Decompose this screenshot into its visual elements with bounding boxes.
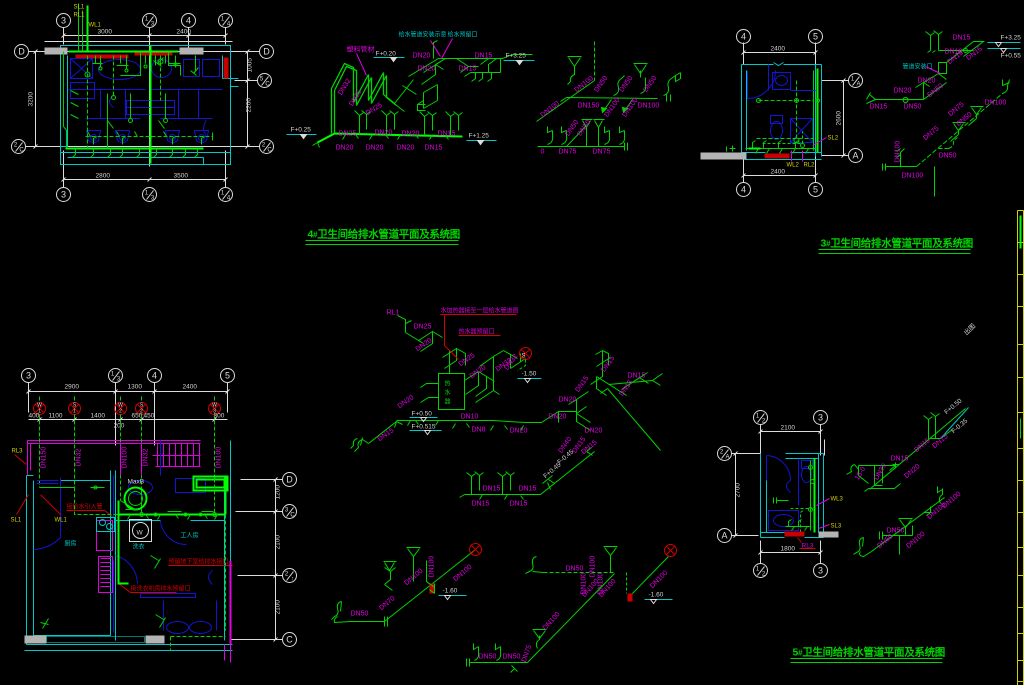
svg-text:DN150: DN150 <box>578 103 600 110</box>
svg-text:DN20: DN20 <box>559 397 577 404</box>
svg-text:F+0.20: F+0.20 <box>376 51 397 58</box>
svg-text:DN25: DN25 <box>339 131 357 138</box>
svg-text:WL3: WL3 <box>831 497 844 503</box>
svg-text:SL1: SL1 <box>11 518 22 524</box>
svg-text:3000: 3000 <box>98 29 113 36</box>
svg-text:4: 4 <box>741 32 746 42</box>
svg-text:F+0.515: F+0.515 <box>412 424 436 431</box>
svg-text:A: A <box>852 151 858 161</box>
svg-text:接洗衣机房排水预留口: 接洗衣机房排水预留口 <box>131 585 191 593</box>
svg-text:4: 4 <box>152 371 157 381</box>
svg-text:DN15: DN15 <box>519 486 537 493</box>
svg-text:F+1.25: F+1.25 <box>469 133 490 140</box>
svg-text:给水管道安装示意: 给水管道安装示意 <box>399 31 447 39</box>
svg-text:管道安装口: 管道安装口 <box>903 63 933 71</box>
svg-text:5#卫生间给排水管道平面及系统图: 5#卫生间给排水管道平面及系统图 <box>793 646 946 659</box>
svg-text:DN20: DN20 <box>366 145 384 152</box>
svg-text:DN20: DN20 <box>894 88 912 95</box>
svg-text:DN50: DN50 <box>566 566 584 573</box>
svg-text:3#卫生间给排水管道平面及系统图: 3#卫生间给排水管道平面及系统图 <box>821 237 974 250</box>
svg-text:RL3: RL3 <box>12 449 24 455</box>
svg-text:1200: 1200 <box>275 485 282 500</box>
svg-text:3: 3 <box>818 566 823 576</box>
svg-text:1800: 1800 <box>781 546 796 553</box>
svg-text:RL1: RL1 <box>74 13 86 19</box>
svg-text:↑: ↑ <box>291 577 294 583</box>
svg-text:3500: 3500 <box>174 173 189 180</box>
svg-text:DN15: DN15 <box>628 373 646 380</box>
svg-text:-1.50: -1.50 <box>522 371 537 378</box>
svg-text:F+3.25: F+3.25 <box>1001 35 1022 42</box>
svg-text:DN15: DN15 <box>953 35 971 42</box>
svg-text:DN15: DN15 <box>870 104 888 111</box>
svg-text:DN15: DN15 <box>459 66 477 73</box>
svg-text:给水预留口: 给水预留口 <box>448 31 478 39</box>
svg-text:W: W <box>137 530 144 537</box>
svg-text:厨房: 厨房 <box>65 540 77 548</box>
svg-text:DN150: DN150 <box>41 447 48 469</box>
svg-text:WL1: WL1 <box>89 23 102 29</box>
svg-text:2100: 2100 <box>781 425 796 432</box>
svg-text:D: D <box>263 47 270 57</box>
svg-text:2600: 2600 <box>836 111 843 126</box>
svg-text:A: A <box>856 82 860 88</box>
svg-text:DN32: DN32 <box>143 448 150 466</box>
svg-text:DN20: DN20 <box>397 145 415 152</box>
svg-text:DN20: DN20 <box>418 66 436 73</box>
svg-text:2400: 2400 <box>771 169 786 176</box>
svg-text:DN15: DN15 <box>475 53 493 60</box>
svg-text:1: 1 <box>73 409 76 415</box>
svg-text:C: C <box>286 635 293 645</box>
svg-text:DN25: DN25 <box>414 324 432 331</box>
svg-text:D: D <box>18 47 25 57</box>
svg-text:3: 3 <box>26 371 31 381</box>
svg-text:DN15: DN15 <box>510 501 528 508</box>
svg-text:C: C <box>290 513 295 519</box>
svg-text:DN10: DN10 <box>461 414 479 421</box>
svg-text:-1.60: -1.60 <box>443 588 458 595</box>
svg-text:DN32: DN32 <box>76 448 83 466</box>
svg-text:DN100: DN100 <box>985 100 1007 107</box>
svg-text:450: 450 <box>144 413 155 420</box>
svg-text:5: 5 <box>225 371 230 381</box>
svg-text:DN20: DN20 <box>402 131 420 138</box>
svg-text:C: C <box>267 148 272 154</box>
svg-text:F+0.50: F+0.50 <box>412 411 433 418</box>
svg-text:DN100: DN100 <box>122 447 129 469</box>
svg-text:DN15: DN15 <box>425 145 443 152</box>
svg-text:F+0.25: F+0.25 <box>291 127 312 134</box>
svg-text:DN100: DN100 <box>638 103 660 110</box>
svg-text:C: C <box>19 148 24 154</box>
svg-text:1005: 1005 <box>247 58 254 73</box>
svg-text:3: 3 <box>61 190 66 200</box>
svg-text:DN15: DN15 <box>438 131 456 138</box>
svg-text:SL3: SL3 <box>831 524 842 530</box>
svg-text:DN20: DN20 <box>510 428 528 435</box>
svg-text:DN100: DN100 <box>429 556 436 578</box>
svg-text:1400: 1400 <box>91 413 106 420</box>
svg-text:SL1: SL1 <box>74 5 85 11</box>
svg-text:DN50: DN50 <box>351 611 369 618</box>
svg-text:DN20: DN20 <box>336 145 354 152</box>
svg-text:F+3.25: F+3.25 <box>506 53 527 60</box>
svg-text:C: C <box>265 82 270 88</box>
svg-text:DN20: DN20 <box>585 428 603 435</box>
svg-text:2400: 2400 <box>177 29 192 36</box>
svg-text:DN100: DN100 <box>902 173 924 180</box>
svg-text:1300: 1300 <box>128 384 143 391</box>
svg-text:200: 200 <box>114 423 125 430</box>
svg-text:3: 3 <box>61 16 66 26</box>
svg-text:接给水引入管: 接给水引入管 <box>67 503 103 511</box>
svg-text:5: 5 <box>813 32 818 42</box>
svg-text:器: 器 <box>445 399 451 406</box>
svg-text:热水器预留口: 热水器预留口 <box>459 328 495 336</box>
svg-text:MaxB: MaxB <box>128 479 145 486</box>
svg-text:2400: 2400 <box>183 384 198 391</box>
svg-text:2: 2 <box>119 409 122 415</box>
svg-text:RL1: RL1 <box>387 310 400 317</box>
svg-text:DN100: DN100 <box>895 141 902 163</box>
svg-text:RL2: RL2 <box>804 163 816 169</box>
svg-text:WL1: WL1 <box>55 518 68 524</box>
svg-text:水加热器接至一层给水管道图: 水加热器接至一层给水管道图 <box>441 307 519 315</box>
svg-text:2400: 2400 <box>771 46 786 53</box>
svg-text:工人房: 工人房 <box>181 532 199 540</box>
svg-text:A: A <box>725 455 729 461</box>
svg-text:DN100: DN100 <box>590 556 597 578</box>
svg-text:2700: 2700 <box>735 483 742 498</box>
svg-text:洗衣: 洗衣 <box>133 543 145 551</box>
svg-text:4#卫生间给排水管道平面及系统图: 4#卫生间给排水管道平面及系统图 <box>308 228 461 241</box>
svg-text:0: 0 <box>541 149 545 156</box>
svg-text:DN15: DN15 <box>891 456 909 463</box>
svg-text:3200: 3200 <box>28 92 35 107</box>
svg-text:2200: 2200 <box>246 98 253 113</box>
svg-text:DN100: DN100 <box>216 447 223 469</box>
svg-text:WL2: WL2 <box>787 163 800 169</box>
svg-text:DN75: DN75 <box>559 149 577 156</box>
svg-text:2100: 2100 <box>275 600 282 615</box>
svg-text:1100: 1100 <box>49 413 63 420</box>
svg-text:F+0.55: F+0.55 <box>1001 53 1022 60</box>
svg-text:4: 4 <box>741 185 746 195</box>
svg-text:DN20: DN20 <box>918 78 936 85</box>
svg-text:DN15: DN15 <box>483 486 501 493</box>
svg-text:DN50: DN50 <box>479 654 497 661</box>
svg-text:2900: 2900 <box>65 384 80 391</box>
svg-text:DN50: DN50 <box>904 104 922 111</box>
svg-text:热: 热 <box>445 380 451 388</box>
svg-text:DN50: DN50 <box>939 153 957 160</box>
svg-text:3: 3 <box>818 413 823 423</box>
svg-text:塑料管材: 塑料管材 <box>347 45 375 54</box>
svg-text:DN20: DN20 <box>549 414 567 421</box>
svg-text:DN50: DN50 <box>503 654 521 661</box>
svg-text:预留地下室给排水接口: 预留地下室给排水接口 <box>169 558 229 566</box>
svg-text:4: 4 <box>186 16 191 26</box>
svg-text:DN20: DN20 <box>413 53 431 60</box>
svg-text:DN8: DN8 <box>472 427 486 434</box>
svg-text:5: 5 <box>813 185 818 195</box>
svg-text:DN75: DN75 <box>593 149 611 156</box>
svg-text:-1.60: -1.60 <box>649 592 664 599</box>
svg-text:SL2: SL2 <box>828 136 839 142</box>
svg-text:2100: 2100 <box>275 535 282 550</box>
svg-text:S: S <box>522 354 526 360</box>
svg-text:300: 300 <box>214 413 225 420</box>
svg-text:水: 水 <box>445 389 451 397</box>
svg-text:D: D <box>286 475 293 485</box>
svg-text:A: A <box>721 531 727 541</box>
svg-text:DN15: DN15 <box>472 501 490 508</box>
svg-text:DN20: DN20 <box>375 130 393 137</box>
svg-text:2800: 2800 <box>96 173 111 180</box>
svg-text:400: 400 <box>29 413 40 420</box>
